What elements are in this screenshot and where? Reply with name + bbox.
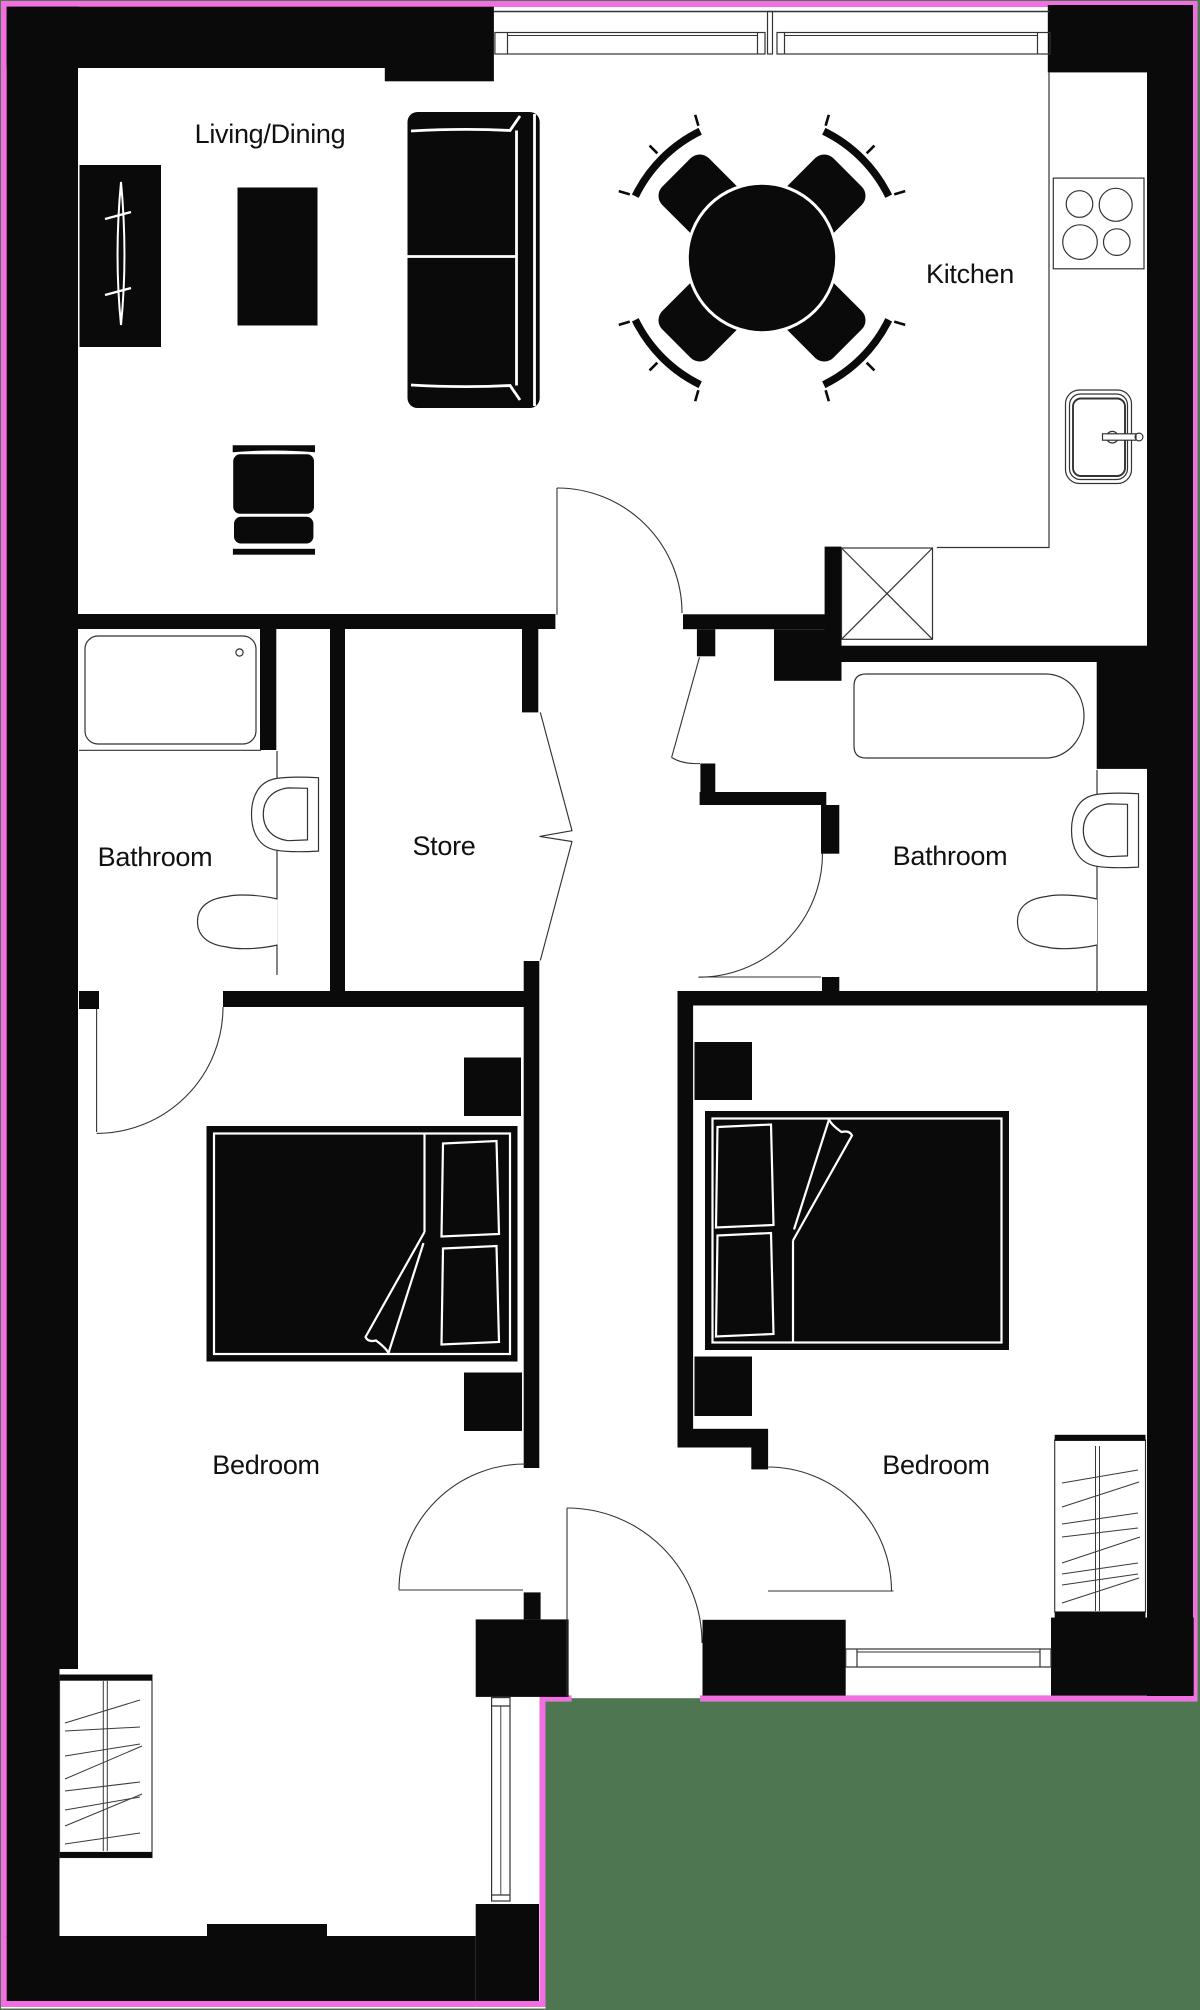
svg-text:Bathroom: Bathroom <box>893 841 1008 871</box>
svg-text:Bedroom: Bedroom <box>212 1450 319 1480</box>
svg-text:Store: Store <box>412 831 475 861</box>
svg-text:Kitchen: Kitchen <box>926 259 1014 289</box>
svg-text:Bedroom: Bedroom <box>882 1450 989 1480</box>
svg-text:Bathroom: Bathroom <box>98 842 213 872</box>
svg-text:Living/Dining: Living/Dining <box>195 119 346 149</box>
